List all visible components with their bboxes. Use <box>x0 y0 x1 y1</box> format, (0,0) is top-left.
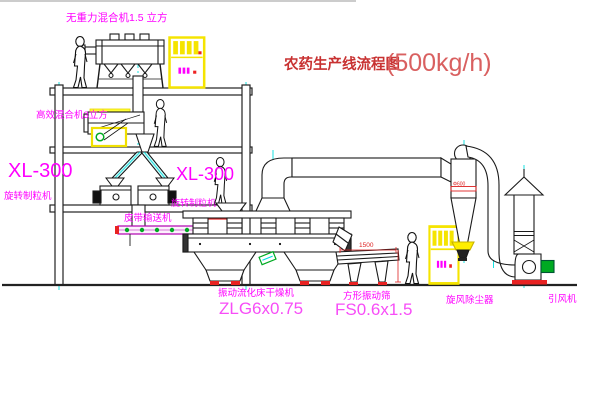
gravity-free-mixer <box>82 34 164 112</box>
exhaust-duct-horizontal <box>292 158 441 177</box>
control-cabinet-ground <box>429 227 458 284</box>
rotary-granulator-left <box>93 186 131 205</box>
granulator-left-name-label: 旋转制粒机 <box>4 190 52 202</box>
diagram-title: 农药生产线流程图 <box>283 55 400 73</box>
control-cabinet-top <box>170 38 205 88</box>
gravity-mixer-label: 无重力混合机1.5 立方 <box>66 11 168 24</box>
fan-motor <box>541 261 554 273</box>
fan-base <box>512 280 547 285</box>
exhaust-elbow <box>262 158 292 198</box>
vibrating-sieve <box>333 227 401 285</box>
exhaust-hood <box>256 198 290 211</box>
belt-conveyor-label: 皮带输送机 <box>124 212 172 224</box>
y-split-chute <box>106 152 174 186</box>
sieve-model-label: FS0.6x1.5 <box>335 300 413 319</box>
discharge-valve <box>259 252 276 265</box>
granulator-right-name-label: 旋转制粒机 <box>171 197 216 208</box>
induced-draft-fan <box>512 254 554 285</box>
granulator-left-model-label: XL-300 <box>8 160 73 182</box>
person-top-floor <box>74 37 88 88</box>
cyclone-name-label: 旋风除尘器 <box>446 294 494 306</box>
dryer-name-label: 振动流化床干燥机 <box>218 287 295 299</box>
dryer-model-label: ZLG6x0.75 <box>219 299 303 318</box>
fan-name-label: 引风机 <box>548 293 577 305</box>
person-ground <box>406 233 420 284</box>
sieve-dimension-label: 1500 <box>359 242 374 249</box>
person-second-floor <box>154 99 166 146</box>
cyclone-dimension-label: Φ600 <box>453 182 466 188</box>
diagram-title-capacity: (500kg/h) <box>386 49 492 77</box>
stack-cap <box>505 177 543 195</box>
cad-drawing: 无重力混合机1.5 立方 高效混合机3立方 XL-300 旋转制粒机 XL-30… <box>0 0 600 403</box>
process-flow-diagram: 无重力混合机1.5 立方 高效混合机3立方 XL-300 旋转制粒机 XL-30… <box>0 0 600 403</box>
granulator-right-model-label: XL-300 <box>176 164 234 184</box>
exhaust-stack <box>505 169 543 254</box>
high-efficiency-mixer-label: 高效混合机3立方 <box>36 109 108 121</box>
